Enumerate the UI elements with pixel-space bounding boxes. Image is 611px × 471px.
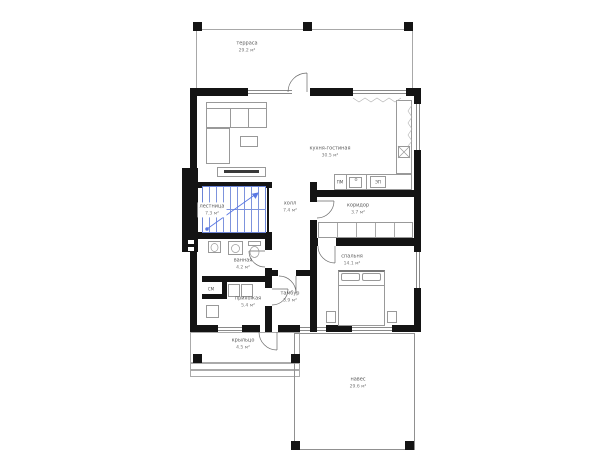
room-label-kitchen-living: кухня-гостиная 30.5 м²: [310, 144, 351, 159]
door-opening-bathroom: [265, 250, 272, 268]
room-name: навес: [350, 375, 367, 383]
wall-kitchen-corridor: [316, 190, 421, 197]
window: [352, 325, 392, 332]
pillow: [341, 273, 360, 281]
room-area: 7.4 м²: [283, 207, 297, 214]
column: [405, 441, 414, 450]
nightstand: [326, 311, 336, 323]
room-area: 5.4 м²: [235, 302, 261, 309]
curtain-zigzag: [353, 98, 401, 102]
room-area: 30.5 м²: [310, 152, 351, 159]
door-opening-corridor: [310, 202, 317, 220]
vent-shaft: [188, 247, 194, 251]
window-bedroom: [414, 252, 421, 288]
bedroom-door: [318, 246, 335, 263]
terrace-door-opening: [292, 88, 310, 96]
stove-tag: ЭП: [375, 180, 381, 185]
coffee-table: [240, 136, 258, 147]
room-area: 4.5 м²: [232, 344, 255, 351]
porch-step: [190, 370, 300, 377]
kitchen-counter-right: [396, 100, 412, 174]
room-name: холл: [283, 199, 297, 207]
kitchen-sink: [349, 177, 362, 188]
corridor-door: [317, 201, 334, 218]
room-label-stairs: лестница 7.3 м²: [198, 202, 227, 217]
room-area: 14.1 м²: [341, 260, 363, 267]
room-label-hall: холл 7.4 м²: [283, 199, 297, 214]
vent-shaft: [188, 240, 194, 244]
column: [291, 354, 300, 363]
wall-stairs-bathroom: [190, 232, 272, 239]
room-area: 4.2 м²: [234, 264, 253, 271]
room-name: тамбур: [281, 289, 300, 297]
porch-step: [190, 363, 300, 370]
window: [218, 325, 242, 332]
room-name: терраса: [236, 39, 257, 47]
room-name: крыльцо: [232, 336, 255, 344]
room-label-entry-hall: прихожая 5.4 м²: [235, 294, 261, 309]
washing-machine: [228, 241, 243, 255]
room-name: кухня-гостиная: [310, 144, 351, 152]
column: [291, 441, 300, 450]
room-area: 3.9 м²: [281, 297, 300, 304]
door-opening-bedroom: [318, 238, 336, 246]
window: [248, 88, 292, 96]
wall-washer-closet-bottom: [202, 294, 227, 299]
counter-divider: [346, 174, 347, 190]
column: [303, 22, 312, 31]
sofa-back-line: [206, 108, 267, 109]
canopy-outline: [294, 333, 415, 450]
sofa: [206, 102, 267, 128]
room-label-canopy: навес 29.6 м²: [350, 375, 367, 390]
room-area: 29.6 м²: [350, 383, 367, 390]
door-opening-vestibule: [278, 270, 296, 276]
window: [414, 104, 421, 150]
door-opening-entryhall: [265, 288, 272, 306]
blanket-line: [338, 285, 385, 286]
bath-sink: [208, 241, 221, 253]
room-label-bedroom: спальня 14.1 м²: [341, 252, 363, 267]
tv: [224, 170, 259, 173]
sofa-seam: [230, 108, 231, 128]
room-label-corridor: коридор 3.7 м²: [347, 201, 369, 216]
stairs-railing: [267, 186, 269, 232]
room-area: 7.3 м²: [200, 210, 225, 217]
window: [353, 88, 406, 96]
dishwasher-tag: ПМ: [337, 180, 343, 185]
counter-divider: [366, 174, 367, 190]
room-label-terrace: терраса 29.2 м²: [236, 39, 257, 54]
terrace-edge-left: [196, 29, 197, 89]
column: [193, 354, 202, 363]
terrace-edge-right: [412, 29, 413, 89]
bench: [206, 305, 219, 318]
room-area: 3.7 м²: [347, 209, 369, 216]
room-label-vestibule: тамбур 3.9 м²: [281, 289, 300, 304]
wardrobe: [318, 222, 413, 238]
wall-bathroom-entry: [202, 276, 272, 282]
column: [404, 22, 413, 31]
room-label-porch: крыльцо 4.5 м²: [232, 336, 255, 351]
room-name: прихожая: [235, 294, 261, 302]
room-label-bathroom: ванная 4.2 м²: [234, 256, 253, 271]
nightstand: [387, 311, 397, 323]
column: [193, 22, 202, 31]
sofa-chaise: [206, 128, 230, 164]
washer-tag: СМ: [208, 287, 214, 292]
sofa-seam: [248, 108, 249, 128]
room-name: спальня: [341, 252, 363, 260]
toilet-tank: [248, 241, 261, 246]
room-name: коридор: [347, 201, 369, 209]
floor-plan: терраса 29.2 м² кухня-гостиная 30.5 м² л…: [0, 0, 611, 471]
room-name: лестница: [200, 202, 225, 210]
pillow: [362, 273, 381, 281]
fridge: [398, 146, 410, 158]
room-name: ванная: [234, 256, 253, 264]
room-area: 29.2 м²: [236, 47, 257, 54]
